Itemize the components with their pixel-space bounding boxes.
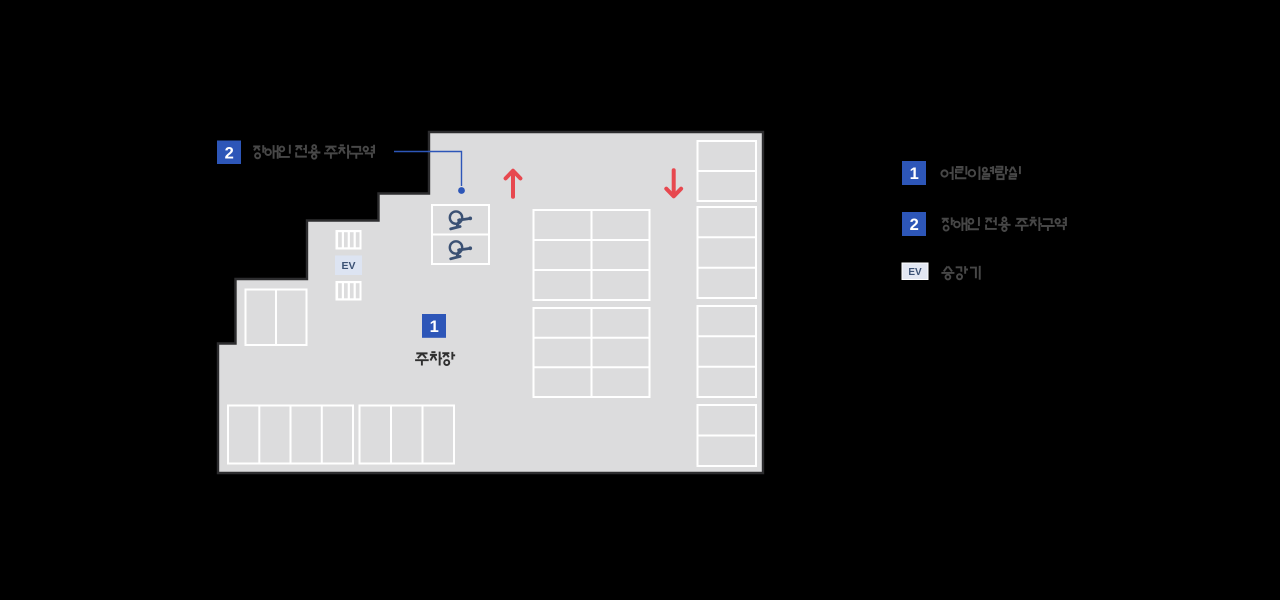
svg-text:EV: EV	[341, 260, 355, 272]
svg-text:2: 2	[910, 216, 919, 234]
svg-text:1: 1	[430, 318, 439, 336]
svg-text:1: 1	[910, 165, 919, 183]
svg-text:EV: EV	[908, 267, 922, 278]
svg-text:2: 2	[225, 144, 234, 162]
